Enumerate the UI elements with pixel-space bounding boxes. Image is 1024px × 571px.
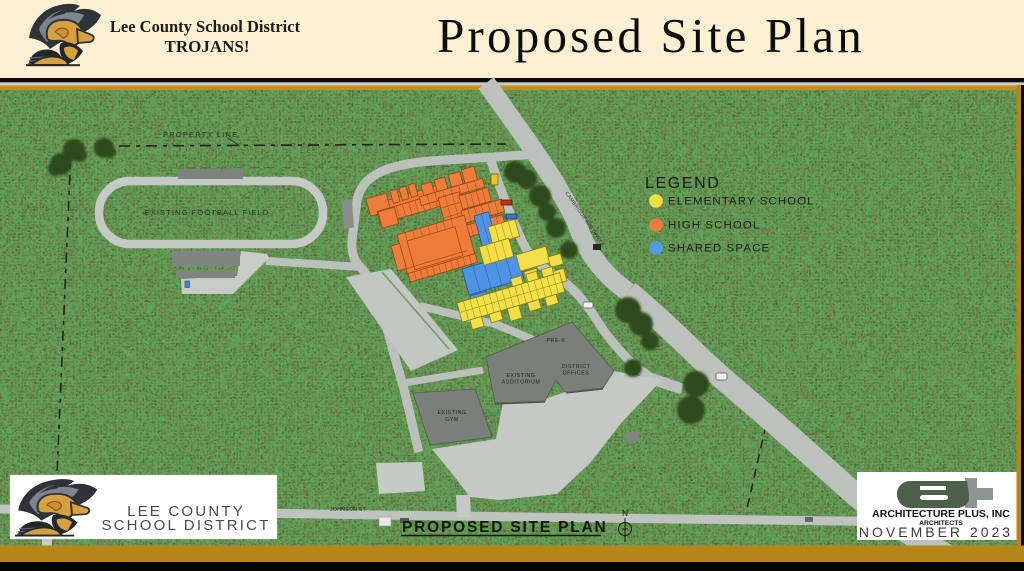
svg-text:ARCHITECTURE PLUS, INC: ARCHITECTURE PLUS, INC bbox=[872, 508, 1010, 520]
svg-text:HIGH SCHOOL: HIGH SCHOOL bbox=[668, 220, 760, 232]
svg-text:EXISTING FOOTBALL FIELD: EXISTING FOOTBALL FIELD bbox=[145, 208, 270, 217]
svg-text:PRE-K: PRE-K bbox=[547, 338, 566, 344]
svg-text:JOHNSON ST: JOHNSON ST bbox=[330, 507, 366, 513]
svg-text:GYM: GYM bbox=[445, 417, 459, 423]
svg-text:PROPERTY LINE: PROPERTY LINE bbox=[163, 130, 238, 139]
svg-text:AUDITORIUM: AUDITORIUM bbox=[502, 380, 541, 386]
svg-text:N: N bbox=[622, 509, 628, 518]
svg-text:PROPOSED SITE PLAN: PROPOSED SITE PLAN bbox=[402, 519, 608, 536]
svg-text:SCHOOL DISTRICT: SCHOOL DISTRICT bbox=[101, 517, 270, 534]
svg-text:OFFICES: OFFICES bbox=[563, 371, 590, 377]
svg-text:LEGEND: LEGEND bbox=[645, 175, 720, 192]
svg-text:SHARED SPACE: SHARED SPACE bbox=[668, 243, 770, 255]
svg-text:EXISTING: EXISTING bbox=[506, 373, 535, 379]
svg-text:EXISTING: EXISTING bbox=[437, 410, 466, 416]
svg-text:ELEMENTARY SCHOOL: ELEMENTARY SCHOOL bbox=[668, 196, 815, 208]
svg-text:Lee County School District: Lee County School District bbox=[110, 17, 301, 36]
svg-text:TROJANS!: TROJANS! bbox=[164, 37, 249, 56]
svg-text:DISTRICT: DISTRICT bbox=[562, 364, 591, 370]
svg-text:Proposed Site Plan: Proposed Site Plan bbox=[437, 8, 865, 63]
svg-text:NOVEMBER 2023: NOVEMBER 2023 bbox=[859, 524, 1013, 540]
